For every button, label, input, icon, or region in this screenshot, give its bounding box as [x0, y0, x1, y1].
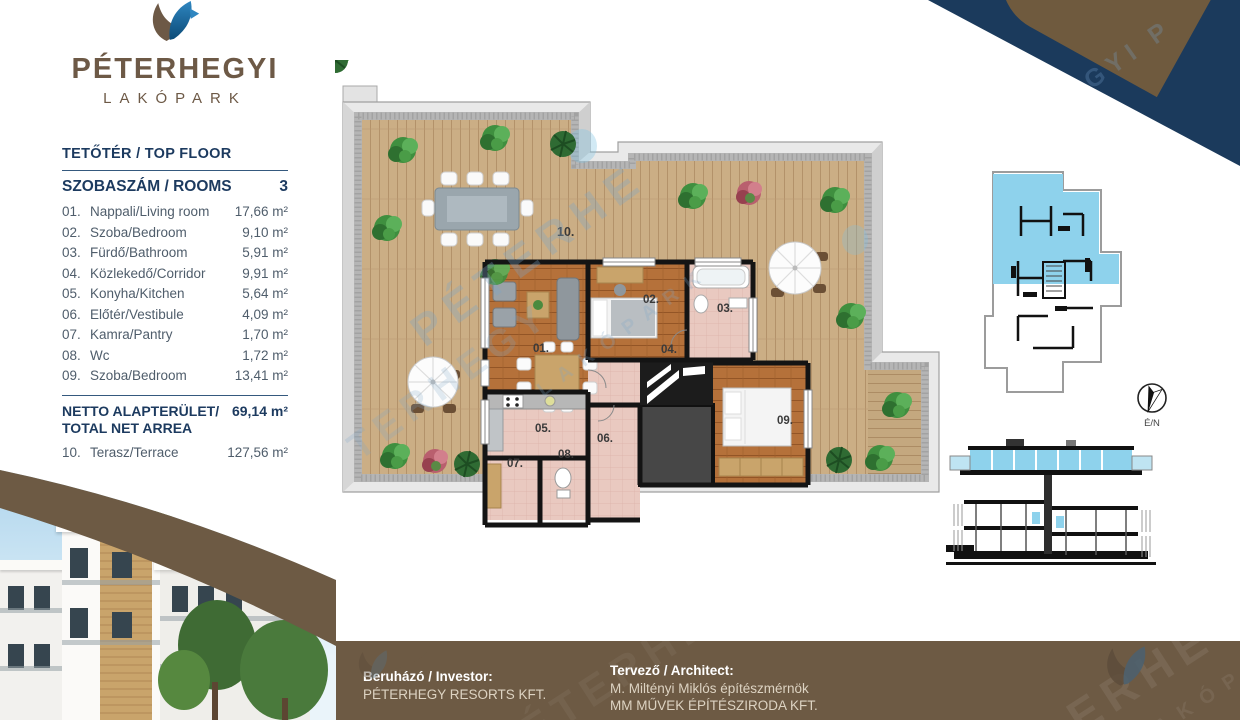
room-row: 05.Konyha/Kitchen5,64 m² — [62, 284, 288, 305]
architect-label: Tervező / Architect: — [610, 662, 818, 680]
room-num: 06. — [62, 305, 90, 326]
architect-block: Tervező / Architect: M. Miltényi Miklós … — [610, 662, 818, 715]
logo-title: PÉTERHEGYI — [60, 53, 290, 86]
room-area: 127,56 m² — [227, 443, 288, 464]
stair-core — [640, 405, 713, 485]
room-area: 5,64 m² — [242, 284, 288, 305]
room-row: 07.Kamra/Pantry1,70 m² — [62, 325, 288, 346]
room-area: 1,72 m² — [242, 346, 288, 367]
floor-title: TETŐTÉR / TOP FLOOR — [62, 146, 288, 162]
room-row: 02.Szoba/Bedroom9,10 m² — [62, 223, 288, 244]
section-topfloor-highlight — [970, 450, 1132, 470]
net-area-row: NETTO ALAPTERÜLET/ 69,14 m² — [62, 403, 288, 420]
bedroom09-furniture — [719, 388, 803, 476]
net-label-2: TOTAL NET ARREA — [62, 420, 288, 437]
room-row: 09.Szoba/Bedroom13,41 m² — [62, 366, 288, 387]
room-area: 5,91 m² — [242, 243, 288, 264]
footer-bird-watermark-icon — [1098, 644, 1160, 688]
room-name: Szoba/Bedroom — [90, 366, 235, 387]
net-value: 69,14 m² — [232, 403, 288, 420]
room-name: Előtér/Vestibule — [90, 305, 242, 326]
room-area: 13,41 m² — [235, 366, 288, 387]
room-num: 08. — [62, 346, 90, 367]
room-num: 01. — [62, 202, 90, 223]
wc-toilet — [555, 468, 571, 488]
room-name: Wc — [90, 346, 242, 367]
rooms-header: SZOBASZÁM / ROOMS 3 — [62, 178, 288, 196]
plan-label-09: 09. — [777, 415, 793, 427]
brochure-page: { "logo": { "title": "PÉTERHEGYI", "subt… — [0, 0, 1240, 720]
room-num: 10. — [62, 443, 90, 464]
room-row: 03.Fürdő/Bathroom5,91 m² — [62, 243, 288, 264]
plan-label-01: 01. — [533, 343, 549, 355]
corner-navy-swoosh: GYI P — [928, 0, 1240, 166]
plan-label-02: 02. — [643, 294, 659, 306]
room-area: 9,91 m² — [242, 264, 288, 285]
key-plan — [963, 166, 1137, 402]
rooms-header-value: 3 — [279, 178, 288, 196]
terrace-parasol-left — [408, 357, 460, 413]
plan-label-10: 10. — [557, 225, 574, 239]
divider — [62, 395, 288, 396]
room-num: 03. — [62, 243, 90, 264]
floor-plan: 01. 02. 03. 04. 05. 06. 07. 08. 09. 10. — [335, 60, 955, 550]
net-label: NETTO ALAPTERÜLET/ — [62, 403, 219, 420]
investor-name: PÉTERHEGY RESORTS KFT. — [363, 686, 546, 704]
photo-brown-swoosh — [0, 468, 336, 720]
plan-label-03: 03. — [717, 303, 733, 315]
building-photo — [0, 468, 336, 720]
room-num: 09. — [62, 366, 90, 387]
logo: PÉTERHEGYI LAKÓPARK — [60, 0, 290, 107]
room-num: 05. — [62, 284, 90, 305]
architect-name: M. Miltényi Miklós építészmérnök — [610, 680, 818, 698]
plan-label-08: 08. — [558, 449, 574, 461]
room-area: 17,66 m² — [235, 202, 288, 223]
building-section — [946, 434, 1158, 586]
compass-label: É/N — [1144, 418, 1160, 429]
info-panel: TETŐTÉR / TOP FLOOR SZOBASZÁM / ROOMS 3 … — [62, 146, 288, 463]
room-num: 02. — [62, 223, 90, 244]
room-row: 01.Nappali/Living room17,66 m² — [62, 202, 288, 223]
plan-label-07: 07. — [507, 458, 523, 470]
footer-bird-watermark-icon-small — [352, 648, 398, 682]
room-name: Fürdő/Bathroom — [90, 243, 242, 264]
room-name: Közlekedő/Corridor — [90, 264, 242, 285]
room-name: Konyha/Kitchen — [90, 284, 242, 305]
room-num: 07. — [62, 325, 90, 346]
room-row: 04.Közlekedő/Corridor9,91 m² — [62, 264, 288, 285]
north-compass: É/N — [1122, 378, 1182, 432]
plan-label-04: 04. — [661, 344, 677, 356]
room-area: 1,70 m² — [242, 325, 288, 346]
plan-label-05: 05. — [535, 423, 551, 435]
room-name: Kamra/Pantry — [90, 325, 242, 346]
room-name: Nappali/Living room — [90, 202, 235, 223]
room-area: 4,09 m² — [242, 305, 288, 326]
room-area: 9,10 m² — [242, 223, 288, 244]
pantry-cabinet — [487, 464, 501, 508]
logo-bird-icon — [143, 0, 207, 42]
logo-subtitle: LAKÓPARK — [60, 90, 290, 107]
terrace-row: 10.Terasz/Terrace127,56 m² — [62, 443, 288, 464]
room-name: Terasz/Terrace — [90, 443, 227, 464]
room-vestibule — [588, 405, 640, 520]
rooms-header-label: SZOBASZÁM / ROOMS — [62, 178, 232, 196]
room-row: 08.Wc1,72 m² — [62, 346, 288, 367]
plan-label-06: 06. — [597, 433, 613, 445]
architect-company: MM MŰVEK ÉPÍTÉSZIRODA KFT. — [610, 697, 818, 715]
room-num: 04. — [62, 264, 90, 285]
room-name: Szoba/Bedroom — [90, 223, 242, 244]
watermark-droplet — [842, 225, 868, 255]
room-row: 06.Előtér/Vestibule4,09 m² — [62, 305, 288, 326]
divider — [62, 170, 288, 171]
room-wc — [540, 458, 588, 520]
